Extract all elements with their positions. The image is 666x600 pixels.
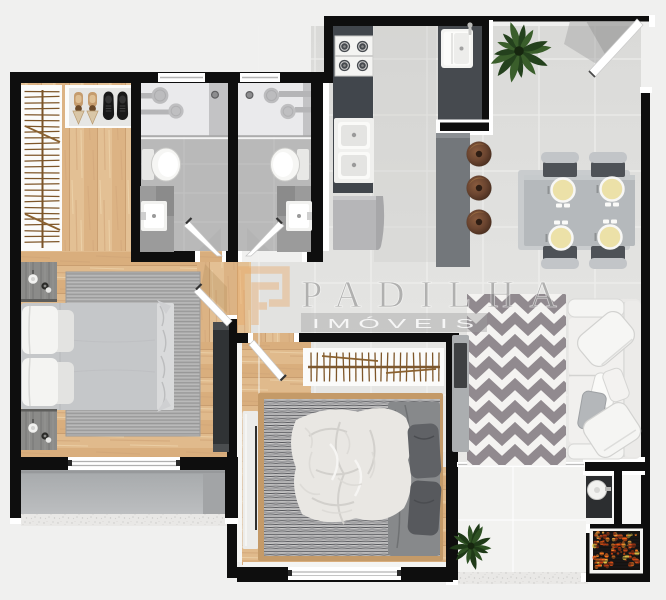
svg-text:I M Ó V E I S: I M Ó V E I S — [312, 316, 475, 331]
